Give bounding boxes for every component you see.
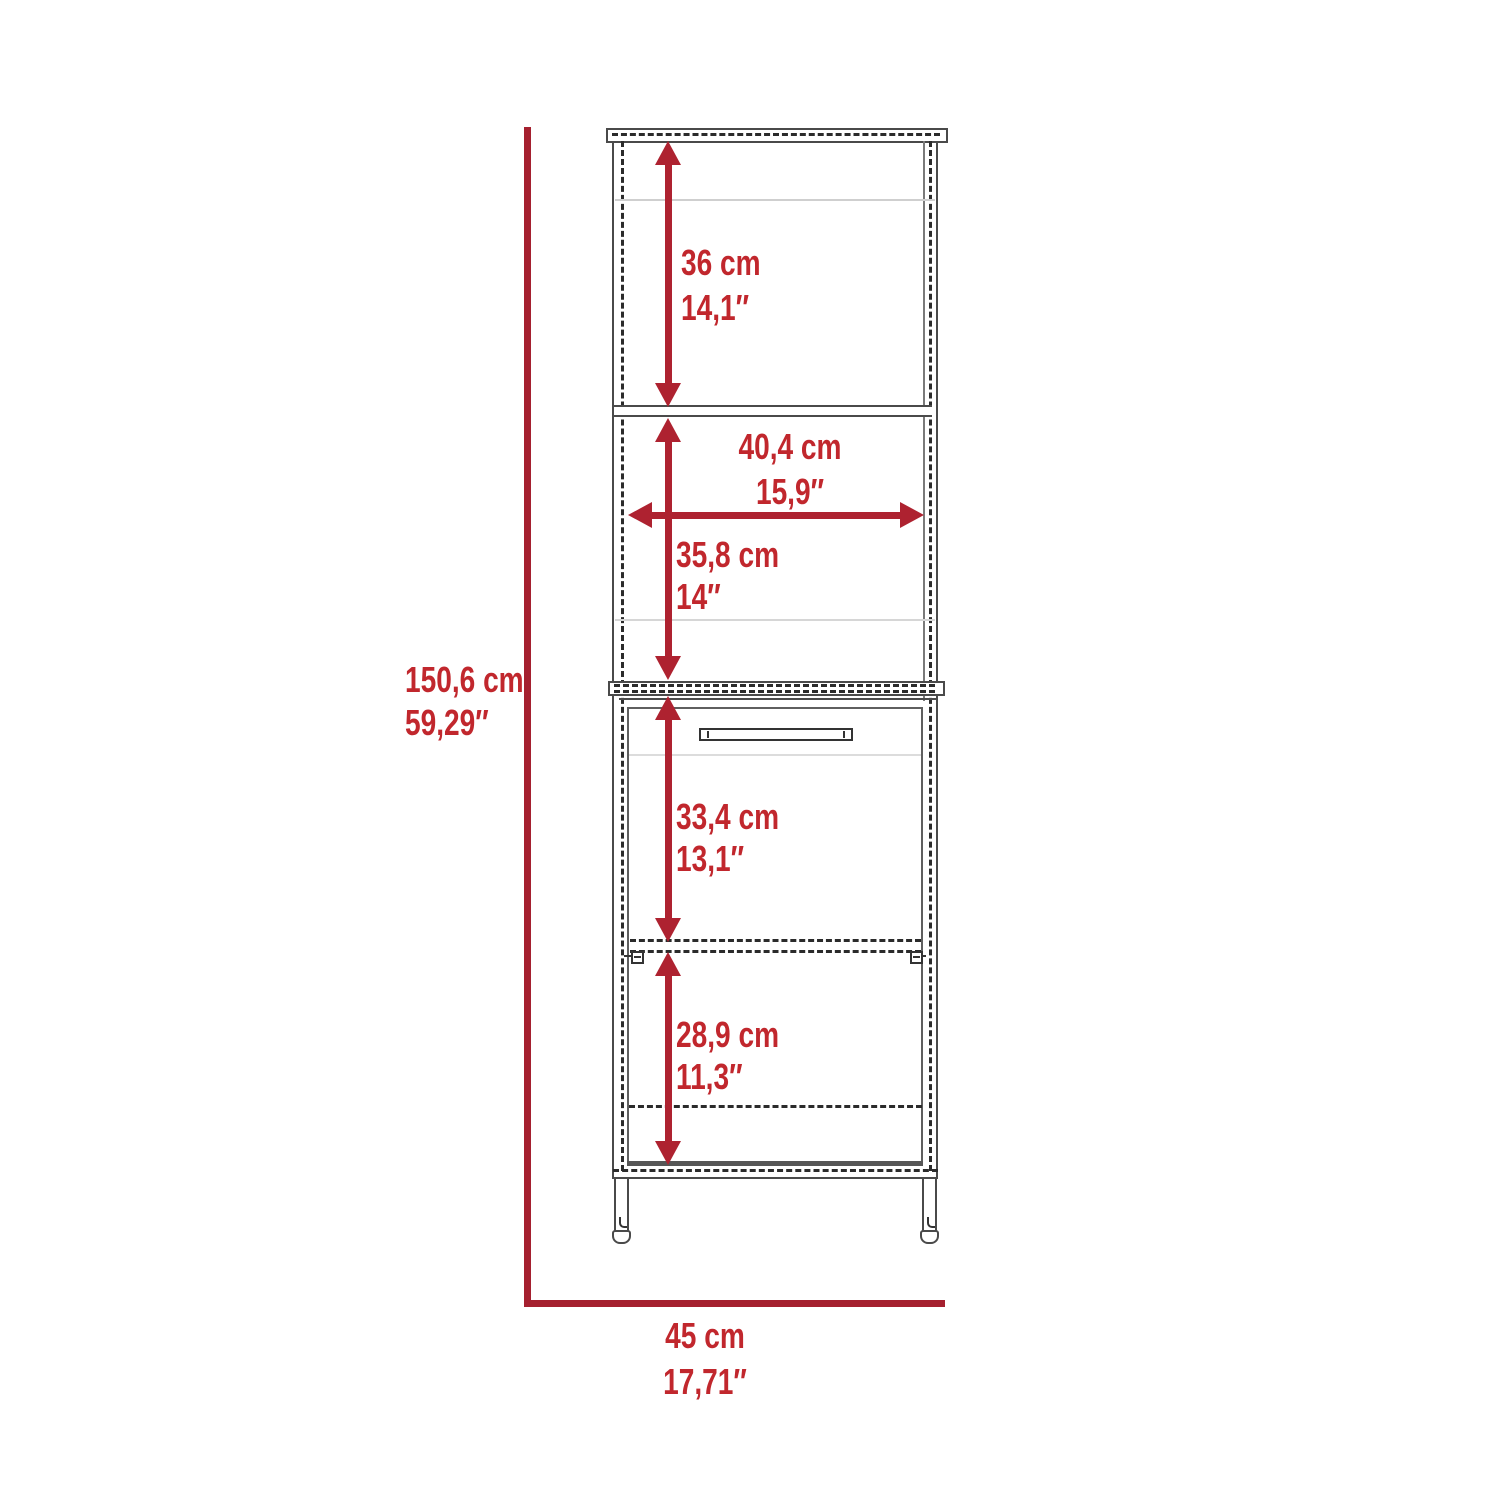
overall-width-label: 45 cm 17,71″ bbox=[627, 1313, 783, 1405]
shelf-pin-right-icon bbox=[910, 951, 923, 964]
middle-band-hidden-edge-top bbox=[614, 684, 935, 687]
shelf-pin-left-stem bbox=[624, 955, 631, 957]
cabinet-lower-height-label: 28,9 cm 11,3″ bbox=[676, 1014, 779, 1098]
door-handle bbox=[699, 728, 853, 741]
overall-width-dimension-line bbox=[524, 1300, 945, 1307]
left-foot bbox=[612, 1230, 631, 1244]
middle-shelf-height-inch: 14″ bbox=[676, 576, 779, 618]
overall-height-dimension-line bbox=[524, 127, 531, 1307]
arrowhead-down-icon bbox=[655, 1141, 681, 1165]
middle-band-hidden-edge-bottom bbox=[614, 690, 935, 693]
arrowhead-down-icon bbox=[655, 383, 681, 407]
cabinet-upper-height-label: 33,4 cm 13,1″ bbox=[676, 796, 779, 880]
right-leg-leveler-mark bbox=[927, 1217, 935, 1228]
interior-width-label: 40,4 cm 15,9″ bbox=[716, 424, 864, 514]
arrow-shaft bbox=[665, 162, 672, 386]
top-shelf-height-label: 36 cm 14,1″ bbox=[681, 240, 761, 330]
cabinet-right-side-hidden-edge bbox=[929, 141, 932, 1171]
arrow-shaft bbox=[665, 973, 672, 1144]
arrow-shaft bbox=[665, 439, 672, 659]
top-shelf-height-arrow bbox=[655, 141, 681, 407]
bottom-hidden-edge bbox=[613, 1169, 938, 1172]
arrowhead-down-icon bbox=[655, 656, 681, 680]
cabinet-upper-height-cm: 33,4 cm bbox=[676, 796, 779, 838]
door-handle-left-screw bbox=[707, 731, 709, 738]
right-foot bbox=[920, 1230, 939, 1244]
door-handle-right-screw bbox=[843, 731, 845, 738]
cabinet-left-side-line bbox=[612, 141, 614, 1179]
cabinet-upper-height-inch: 13,1″ bbox=[676, 838, 779, 880]
overall-width-inch: 17,71″ bbox=[627, 1359, 783, 1405]
interior-width-cm: 40,4 cm bbox=[716, 424, 864, 469]
top-shelf-height-inch: 14,1″ bbox=[681, 285, 761, 330]
bottom-rail bbox=[613, 1177, 938, 1179]
overall-height-label: 150,6 cm 59,29″ bbox=[405, 658, 524, 744]
arrow-shaft bbox=[665, 717, 672, 921]
arrowhead-down-icon bbox=[655, 918, 681, 942]
cabinet-right-inner-line bbox=[923, 141, 925, 701]
dimension-diagram: 150,6 cm 59,29″ 45 cm 17,71″ bbox=[0, 0, 1500, 1500]
cabinet-lower-height-cm: 28,9 cm bbox=[676, 1014, 779, 1056]
overall-width-cm: 45 cm bbox=[627, 1313, 783, 1359]
top-shelf-height-cm: 36 cm bbox=[681, 240, 761, 285]
middle-shelf-height-cm: 35,8 cm bbox=[676, 534, 779, 576]
cabinet-lower-height-inch: 11,3″ bbox=[676, 1056, 779, 1098]
shelf-pin-left-icon bbox=[631, 951, 644, 964]
interior-width-inch: 15,9″ bbox=[716, 469, 864, 514]
cabinet-right-side-line bbox=[936, 141, 938, 1179]
cabinet-top-panel-hidden-edge bbox=[612, 133, 940, 136]
middle-shelf-height-label: 35,8 cm 14″ bbox=[676, 534, 779, 618]
overall-height-cm: 150,6 cm bbox=[405, 658, 524, 701]
arrowhead-right-icon bbox=[900, 502, 924, 528]
overall-height-inch: 59,29″ bbox=[405, 701, 524, 744]
left-leg-leveler-mark bbox=[619, 1217, 627, 1228]
cabinet-left-side-hidden-edge bbox=[621, 141, 624, 1171]
